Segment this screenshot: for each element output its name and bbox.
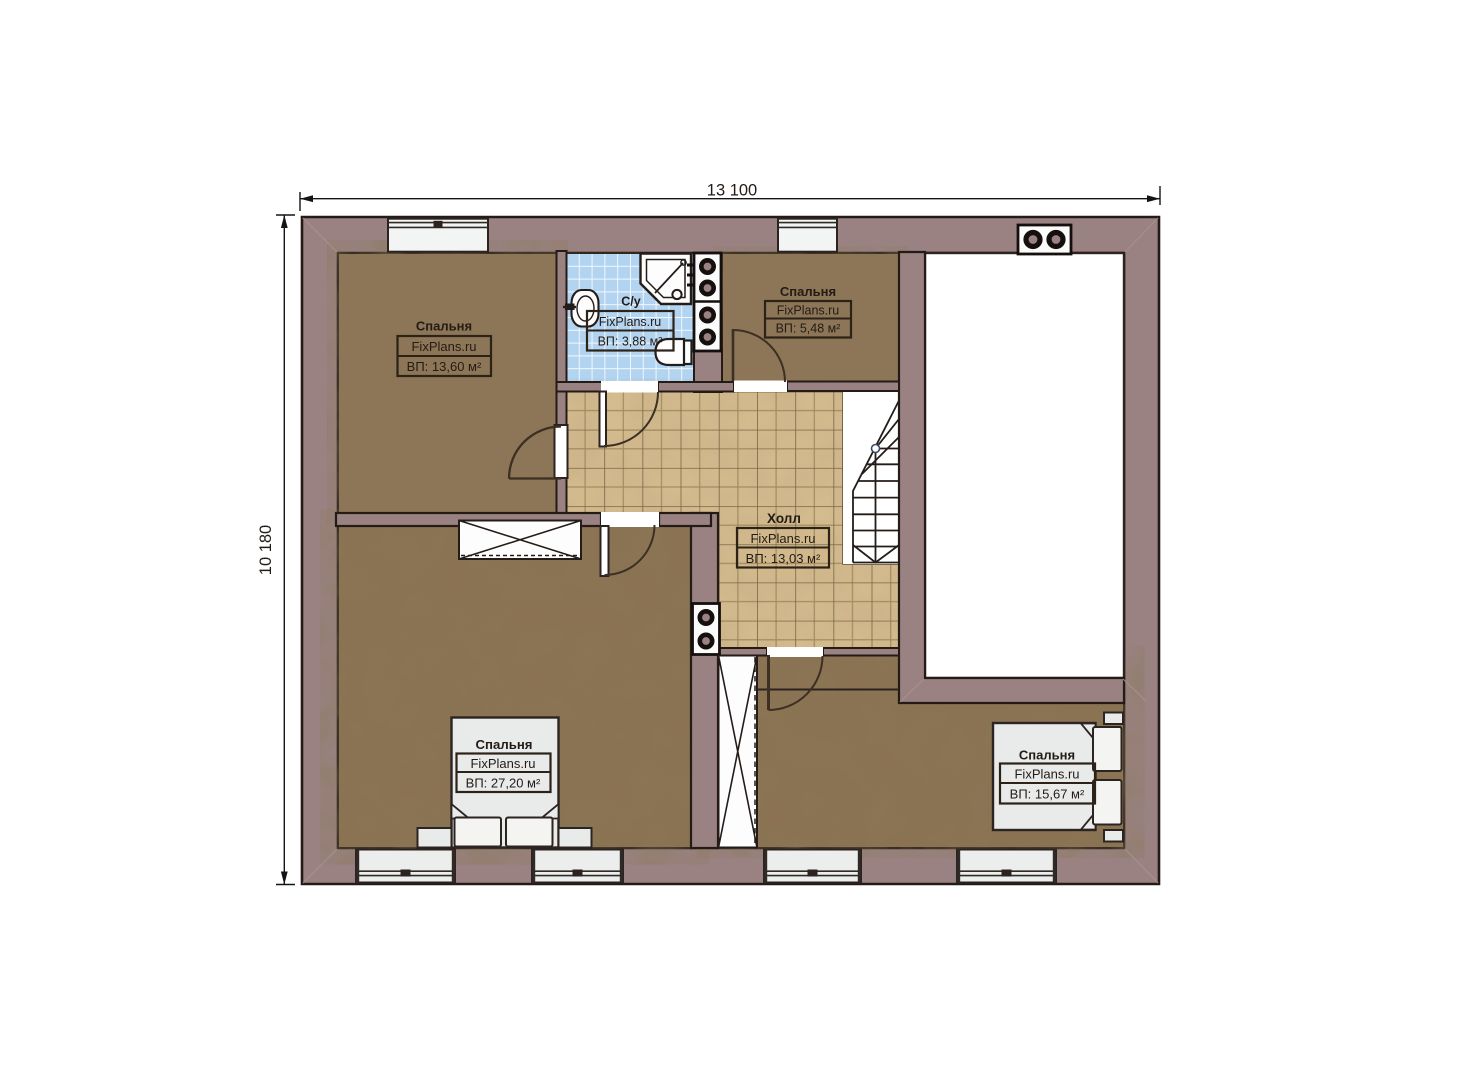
- svg-text:Спальня: Спальня: [1019, 748, 1075, 763]
- svg-text:ВП: 3,88 м²: ВП: 3,88 м²: [598, 335, 663, 349]
- svg-text:FixPlans.ru: FixPlans.ru: [470, 756, 535, 771]
- svg-text:ВП: 13,60 м²: ВП: 13,60 м²: [407, 359, 482, 374]
- svg-text:FixPlans.ru: FixPlans.ru: [599, 315, 662, 329]
- svg-text:13 100: 13 100: [707, 182, 757, 200]
- svg-text:Спальня: Спальня: [416, 319, 472, 334]
- svg-text:10 180: 10 180: [257, 525, 275, 575]
- svg-text:ВП: 15,67 м²: ВП: 15,67 м²: [1010, 787, 1085, 802]
- svg-text:Спальня: Спальня: [780, 284, 836, 299]
- svg-text:FixPlans.ru: FixPlans.ru: [411, 339, 476, 354]
- svg-text:FixPlans.ru: FixPlans.ru: [777, 304, 840, 318]
- svg-text:ВП: 13,03 м²: ВП: 13,03 м²: [746, 551, 821, 566]
- svg-text:ВП: 27,20 м²: ВП: 27,20 м²: [466, 776, 541, 791]
- svg-text:Холл: Холл: [767, 511, 801, 526]
- svg-text:FixPlans.ru: FixPlans.ru: [1014, 767, 1079, 782]
- svg-text:FixPlans.ru: FixPlans.ru: [750, 531, 815, 546]
- svg-text:ВП: 5,48 м²: ВП: 5,48 м²: [776, 322, 841, 336]
- svg-text:С/у: С/у: [621, 295, 641, 309]
- svg-text:Спальня: Спальня: [476, 737, 533, 752]
